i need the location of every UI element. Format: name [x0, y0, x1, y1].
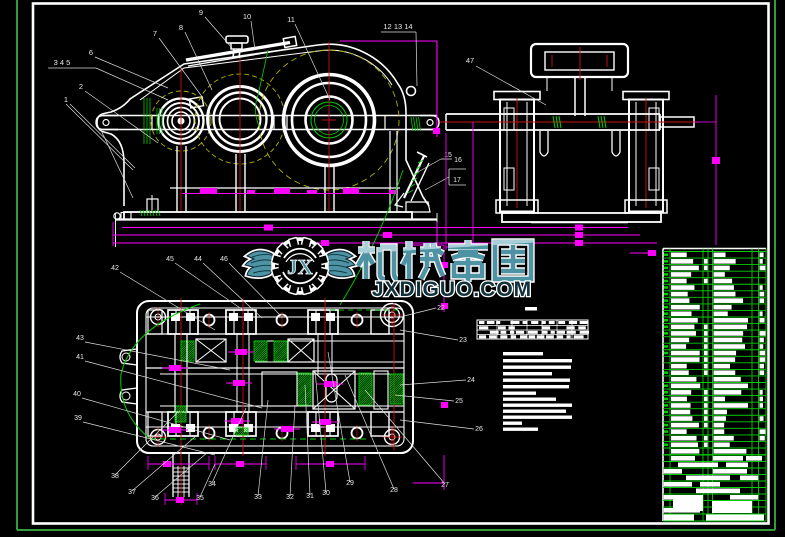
svg-text:JX: JX — [287, 255, 313, 279]
svg-text:28: 28 — [390, 487, 398, 494]
svg-text:25: 25 — [455, 398, 463, 405]
svg-text:11: 11 — [287, 15, 295, 24]
svg-text:37: 37 — [128, 489, 136, 496]
svg-text:42: 42 — [111, 265, 119, 272]
svg-text:44: 44 — [194, 256, 202, 263]
svg-text:12 13 14: 12 13 14 — [383, 22, 412, 31]
svg-text:45: 45 — [166, 256, 174, 263]
svg-text:47: 47 — [466, 56, 474, 65]
svg-text:26: 26 — [475, 426, 483, 433]
svg-text:22: 22 — [437, 305, 445, 312]
svg-text:JXDIGUO.COM: JXDIGUO.COM — [372, 278, 532, 301]
svg-text:36: 36 — [151, 495, 159, 502]
svg-text:7: 7 — [153, 29, 157, 38]
svg-text:8: 8 — [179, 23, 183, 32]
svg-text:6: 6 — [89, 48, 93, 57]
svg-text:27: 27 — [441, 482, 449, 489]
svg-text:38: 38 — [111, 473, 119, 480]
svg-text:23: 23 — [459, 337, 467, 344]
svg-text:43: 43 — [76, 335, 84, 342]
svg-text:40: 40 — [73, 391, 81, 398]
svg-text:9: 9 — [199, 8, 203, 17]
svg-text:17: 17 — [453, 177, 461, 184]
svg-text:2: 2 — [79, 82, 83, 91]
svg-text:41: 41 — [76, 354, 84, 361]
svg-text:3 4 5: 3 4 5 — [54, 58, 71, 67]
svg-text:10: 10 — [243, 12, 251, 21]
svg-text:24: 24 — [467, 377, 475, 384]
svg-text:1: 1 — [64, 95, 68, 104]
svg-text:15: 15 — [444, 152, 452, 159]
svg-text:16: 16 — [454, 157, 462, 164]
svg-text:39: 39 — [74, 415, 82, 422]
svg-text:46: 46 — [220, 256, 228, 263]
